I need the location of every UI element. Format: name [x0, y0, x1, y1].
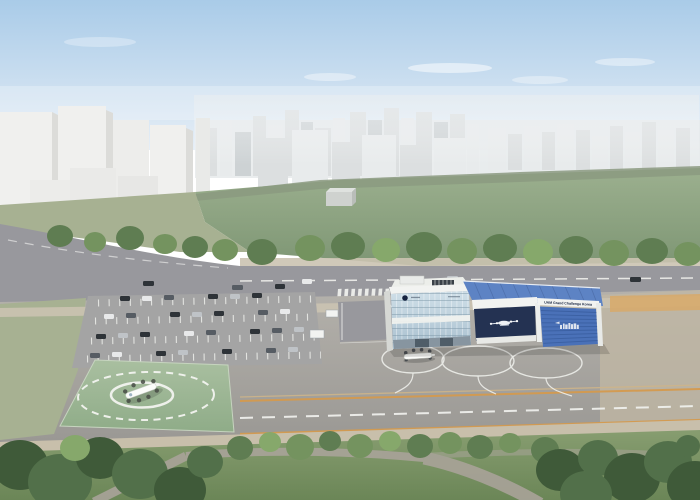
middle-bay — [472, 297, 538, 344]
office-tower — [384, 276, 471, 352]
uam-vertiport-rendering: UAM Grand Challenge Korea — [0, 0, 700, 500]
parking-lot — [72, 292, 322, 368]
rendering-canvas: UAM Grand Challenge Korea — [0, 0, 700, 500]
signboard — [326, 310, 338, 317]
operator-logo — [402, 295, 408, 301]
signboard — [310, 330, 324, 338]
field-warehouse — [326, 188, 356, 206]
